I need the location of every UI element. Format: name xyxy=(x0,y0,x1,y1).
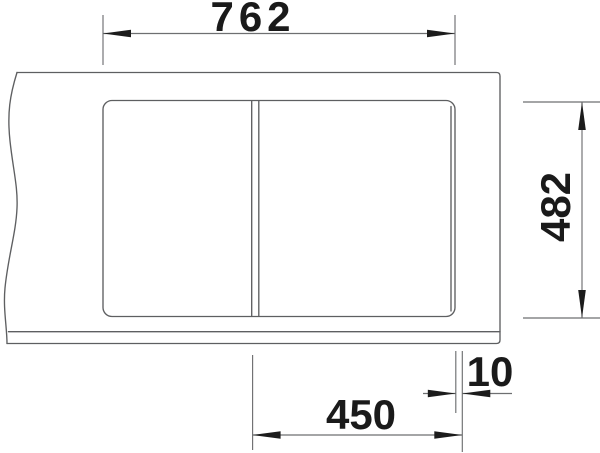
arrow-down-icon xyxy=(578,290,586,318)
dimension-label-edge-offset: 10 xyxy=(467,351,514,393)
sink-bowl xyxy=(103,101,455,317)
break-line xyxy=(4,73,17,344)
dimension-label-depth: 482 xyxy=(535,172,577,242)
bowl-outline xyxy=(103,101,455,317)
sink-outer-outline xyxy=(7,73,500,344)
dimension-label-bowl-width: 450 xyxy=(326,394,396,436)
arrow-left-icon xyxy=(103,30,131,38)
sink-technical-drawing: 762 482 450 10 xyxy=(0,0,600,453)
arrow-left-icon xyxy=(253,431,281,439)
arrow-right-icon xyxy=(427,30,455,38)
arrow-right-icon xyxy=(434,431,462,439)
arrow-right-icon xyxy=(428,390,456,398)
dimension-label-width: 762 xyxy=(210,0,295,38)
arrow-up-icon xyxy=(578,102,586,130)
